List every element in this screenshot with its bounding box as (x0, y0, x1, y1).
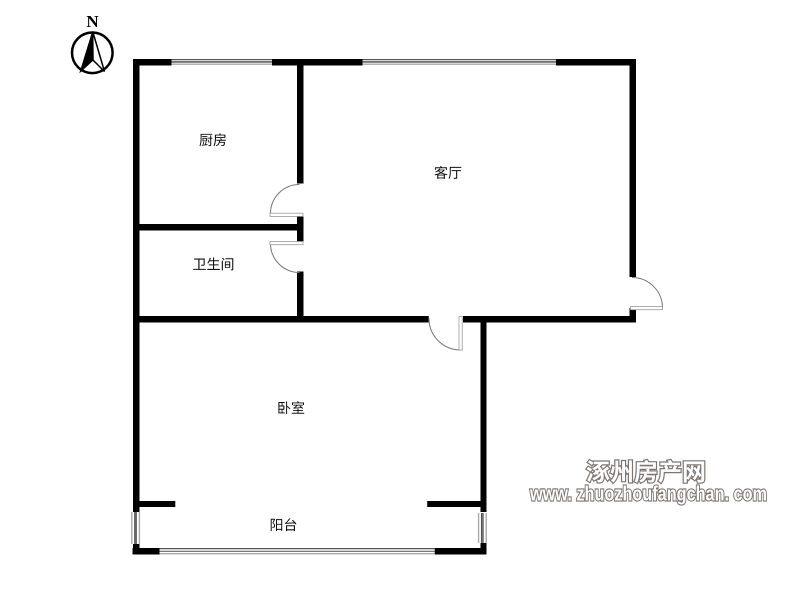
svg-text:www. zhuozhoufangchan. com: www. zhuozhoufangchan. com (529, 484, 767, 506)
svg-text:N: N (86, 12, 99, 31)
